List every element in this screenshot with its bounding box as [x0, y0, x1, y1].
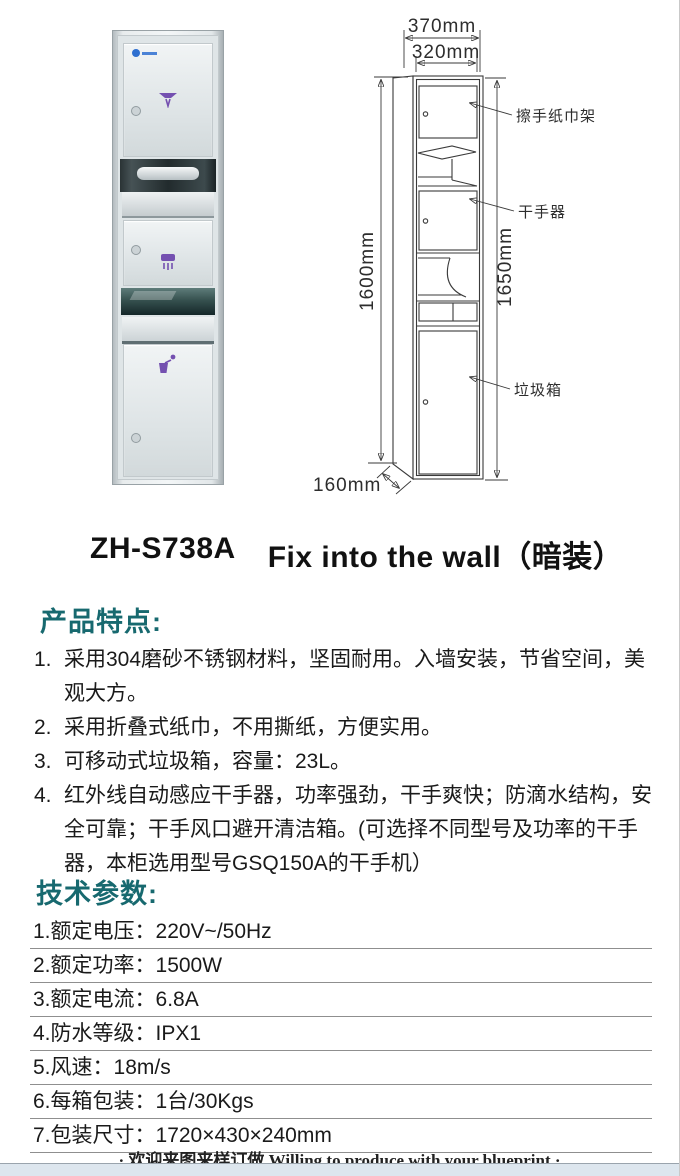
drawing-lock — [423, 400, 427, 404]
dryer-glass-panel — [121, 288, 215, 315]
dim-outer-width-label: 370mm — [408, 16, 476, 37]
feature-text: 红外线自动感应干手器，功率强劲，干手爽快；防滴水结构，安全可靠；干手风口避开清洁… — [64, 779, 660, 881]
dim-depth-label: 160mm — [313, 475, 381, 496]
spec-row: 1.额定电压：220V~/50Hz — [30, 915, 652, 949]
feature-number: 3. — [34, 745, 64, 779]
lock-icon — [131, 106, 141, 116]
feature-text: 可移动式垃圾箱，容量：23L。 — [64, 745, 660, 779]
drawing-towel-lip — [418, 146, 476, 159]
glass-reflection — [130, 291, 177, 300]
specs-section: 技术参数: 1.额定电压：220V~/50Hz 2.额定功率：1500W 3.额… — [30, 872, 652, 1153]
specs-heading: 技术参数: — [36, 872, 652, 911]
title-row: ZH-S738A Fix into the wall（暗装） — [90, 532, 623, 576]
product-photo — [112, 30, 224, 485]
drawing-paper-door — [419, 86, 477, 138]
dispenser-opening — [122, 192, 214, 218]
brand-logo — [132, 49, 157, 57]
label-trash-bin: 垃圾箱 — [514, 382, 562, 399]
dim-right-height-label: 1650mm — [495, 227, 516, 307]
spec-row: 4.防水等级：IPX1 — [30, 1017, 652, 1051]
spec-row: 2.额定功率：1500W — [30, 949, 652, 983]
technical-drawing: 370mm 320mm 1600mm 1650mm 160mm 擦手纸巾架 干手… — [300, 0, 630, 515]
spec-row: 6.每箱包装：1台/30Kgs — [30, 1085, 652, 1119]
feature-number: 2. — [34, 711, 64, 745]
trash-bin-icon — [156, 354, 180, 374]
dim-left-height-label: 1600mm — [357, 231, 378, 311]
spec-row: 5.风速：18m/s — [30, 1051, 652, 1085]
hand-dryer-door — [123, 220, 213, 286]
feature-item: 3. 可移动式垃圾箱，容量：23L。 — [34, 745, 660, 779]
feature-item: 1. 采用304磨砂不锈钢材料，坚固耐用。入墙安装，节省空间，美观大方。 — [34, 643, 660, 711]
feature-text: 采用折叠式纸巾，不用撕纸，方便实用。 — [64, 711, 660, 745]
cabinet-side-panel — [393, 76, 413, 479]
dryer-air-recess — [122, 317, 214, 344]
paper-outlet-slot — [120, 159, 216, 192]
drawing-dryer-spout — [447, 258, 466, 297]
paper-towel-icon — [157, 92, 179, 108]
feature-item: 4. 红外线自动感应干手器，功率强劲，干手爽快；防滴水结构，安全可靠；干手风口避… — [34, 779, 660, 881]
features-section: 产品特点: 1. 采用304磨砂不锈钢材料，坚固耐用。入墙安装，节省空间，美观大… — [34, 600, 660, 881]
drawing-air-slot — [419, 303, 477, 321]
footer-bar — [0, 1163, 679, 1176]
lock-icon — [131, 433, 141, 443]
trash-bin-door — [123, 344, 213, 477]
model-number: ZH-S738A — [90, 532, 236, 576]
label-paper-rack: 擦手纸巾架 — [516, 108, 596, 125]
spec-row: 3.额定电流：6.8A — [30, 983, 652, 1017]
paper-dispenser-door — [123, 43, 213, 157]
feature-number: 1. — [34, 643, 64, 711]
hand-dryer-icon — [158, 253, 178, 273]
dim-inner-width-label: 320mm — [412, 42, 480, 63]
product-title: Fix into the wall（暗装） — [268, 532, 624, 576]
product-photo-cabinet — [117, 35, 219, 480]
features-heading: 产品特点: — [40, 600, 660, 639]
drawing-lock — [423, 112, 427, 116]
label-hand-dryer: 干手器 — [518, 204, 566, 221]
product-sheet-page: 370mm 320mm 1600mm 1650mm 160mm 擦手纸巾架 干手… — [0, 0, 680, 1176]
feature-text: 采用304磨砂不锈钢材料，坚固耐用。入墙安装，节省空间，美观大方。 — [64, 643, 660, 711]
feature-number: 4. — [34, 779, 64, 881]
feature-item: 2. 采用折叠式纸巾，不用撕纸，方便实用。 — [34, 711, 660, 745]
drawing-lock — [423, 219, 427, 223]
lock-icon — [131, 245, 141, 255]
paper-tray — [137, 167, 198, 180]
